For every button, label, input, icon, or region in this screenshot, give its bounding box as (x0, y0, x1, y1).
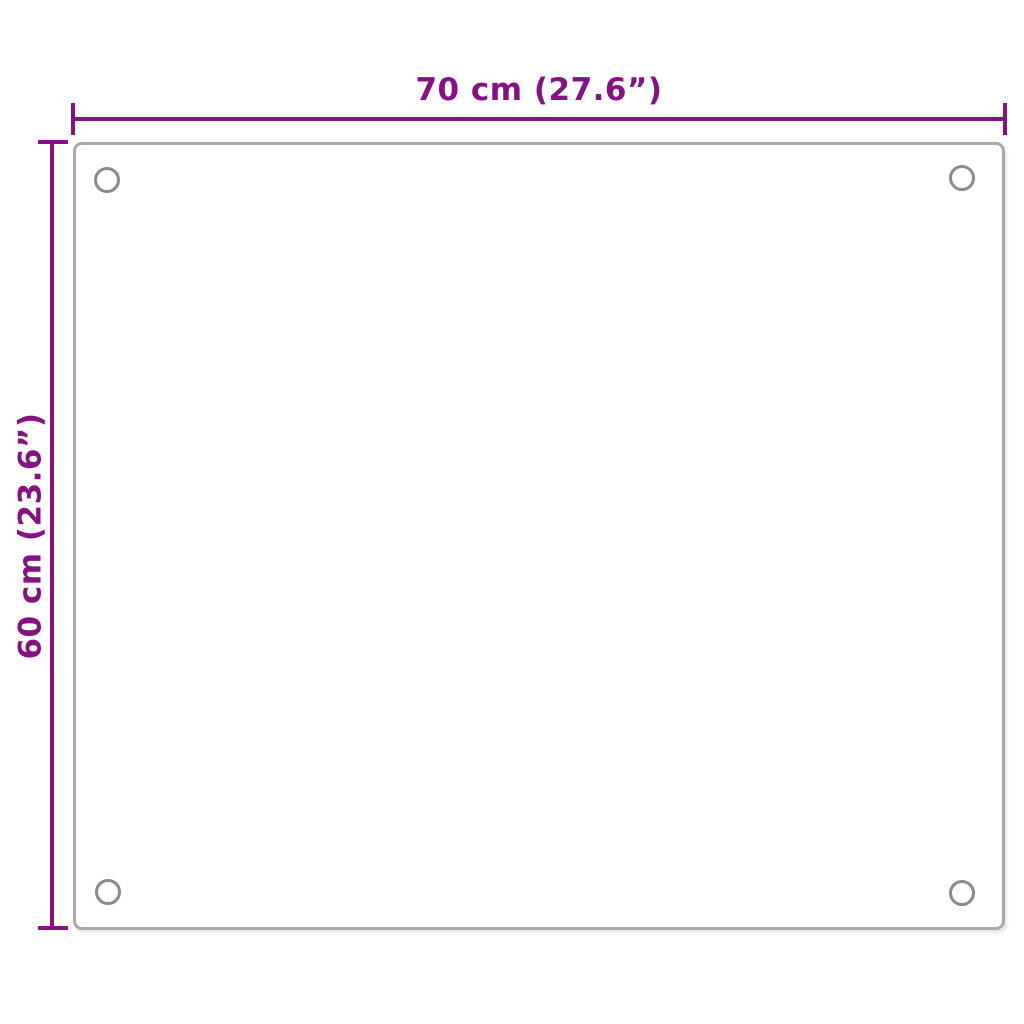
height-dimension-label: 60 cm (23.6”) (13, 412, 49, 659)
height-dimension-label-area: 60 cm (23.6”) (2, 142, 60, 930)
mounting-hole-top-left-icon (94, 167, 120, 193)
mounting-hole-bottom-left-icon (95, 879, 121, 905)
width-dimension-line (73, 117, 1005, 121)
mounting-hole-bottom-right-icon (949, 880, 975, 906)
mounting-hole-top-right-icon (949, 165, 975, 191)
dimension-diagram: 70 cm (27.6”) 60 cm (23.6”) (0, 0, 1024, 1024)
width-dimension-label: 70 cm (27.6”) (73, 72, 1005, 108)
panel-outline (73, 142, 1005, 930)
